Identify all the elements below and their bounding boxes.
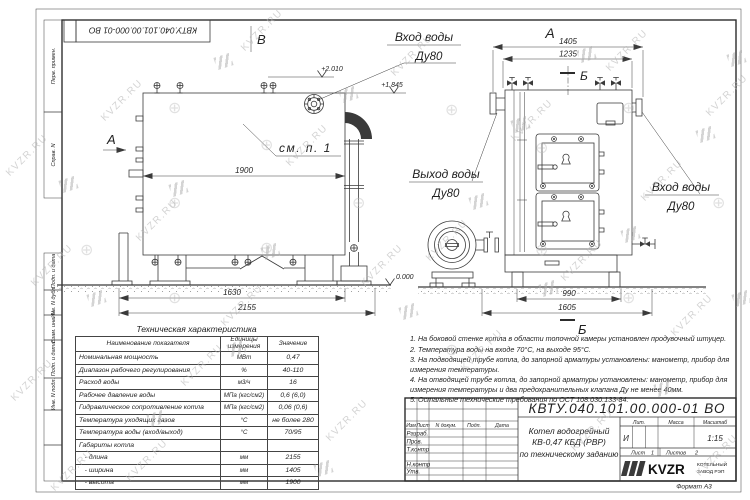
- spec-table-title: Техническая характеристика: [75, 324, 318, 334]
- note-line: 5. Остальные технические требования по О…: [410, 395, 737, 405]
- inlet-flange-icon: [305, 95, 324, 114]
- tb-sheet-value: 1: [651, 451, 654, 457]
- elevation-value: +2.010: [321, 66, 343, 73]
- door-handle: [538, 222, 553, 226]
- spec-cell: 40-110: [268, 364, 319, 377]
- tb-lit-header: Лит.: [632, 420, 645, 426]
- tb-scale-header: Масштаб: [703, 420, 728, 426]
- left-view: [57, 26, 461, 316]
- top-stamp-small-box: [64, 20, 76, 42]
- upper-door: [536, 134, 599, 191]
- leg: [512, 272, 523, 287]
- spec-row: Диапазон рабочего регулирования%40-110: [76, 364, 319, 377]
- tb-row: Утв.: [406, 470, 421, 476]
- top-stamp-doc-number: КВТУ.040.101.00.000-01 ВО: [88, 26, 197, 36]
- tb-col: N докум.: [436, 423, 457, 429]
- left-wall-fittings: [129, 116, 143, 212]
- tb-title-3: по техническому заданию: [520, 450, 619, 459]
- spec-cell: мм: [221, 477, 268, 490]
- spec-cell: [268, 439, 319, 452]
- outlet-stub: [496, 98, 505, 110]
- sidebar-label: Подп. и дата: [51, 342, 57, 376]
- tb-title-2: КВ-0,47 КБД (РВР): [532, 437, 606, 447]
- spec-cell: Рабочее давление воды: [76, 389, 221, 402]
- spec-cell: Температура воды (вход/выход): [76, 427, 221, 440]
- spec-cell: - высота: [76, 477, 221, 490]
- spec-row: Расход водым3/ч16: [76, 377, 319, 390]
- valve-icon: [177, 83, 183, 94]
- callout-text: см. п. 1: [279, 141, 332, 155]
- spec-row: Температура уходящих газов°Сне более 280: [76, 414, 319, 427]
- plinth-handle: [545, 261, 559, 265]
- tb-row: Н.контр: [407, 463, 431, 469]
- valve-icon: [175, 255, 181, 265]
- inlet-water-dn: Ду80: [414, 51, 443, 63]
- drawing-sheet: Перв. примен. Справ. N Подп. и дата Инв.…: [0, 0, 750, 500]
- spec-row: Габариты котла: [76, 439, 319, 452]
- tb-sheets-label: Листов: [665, 451, 686, 457]
- spec-row: - ширинамм1405: [76, 464, 319, 477]
- spec-cell: °С: [221, 414, 268, 427]
- spec-row: Рабочее давление водыМПа (кгс/см2)0,6 (6…: [76, 389, 319, 402]
- door-latch-icon: [562, 154, 570, 164]
- bolt-icon: [552, 195, 557, 200]
- tb-lit-value: И: [623, 434, 629, 443]
- outlet-flange: [490, 93, 496, 114]
- front-duct: [514, 90, 527, 255]
- tb-col: Дата: [494, 423, 509, 429]
- spec-row: Гидравлическое сопротивление котлаМПа (к…: [76, 402, 319, 415]
- fan-blower: [428, 221, 484, 287]
- spec-cell: 0,6 (6,0): [268, 389, 319, 402]
- sidebar-label: Справ. N: [51, 143, 57, 166]
- valve-icon: [290, 255, 296, 265]
- fan-valve-flanges: [484, 232, 499, 252]
- view-label-a-top: А: [544, 25, 554, 41]
- upper-door-panel: [542, 143, 594, 183]
- tb-row: Разраб.: [407, 431, 429, 437]
- notes-block: 1. На боковой стенке котла в области топ…: [410, 334, 737, 406]
- bolt-icon: [590, 242, 595, 247]
- spec-cell: Гидравлическое сопротивление котла: [76, 402, 221, 415]
- spec-cell: не более 280: [268, 414, 319, 427]
- left-downpipe: [119, 233, 128, 281]
- kvzr-logo-text: KVZR: [648, 462, 685, 477]
- spec-cell: 0,06 (0,6): [268, 402, 319, 415]
- spec-cell: МПа (кгс/см2): [221, 402, 268, 415]
- pipe-lower: [350, 252, 359, 266]
- section-label-top: Б: [580, 69, 588, 83]
- spec-cell: 16: [268, 377, 319, 390]
- spec-row: Температура воды (вход/выход)°С70/95: [76, 427, 319, 440]
- spec-cell: мм: [221, 452, 268, 465]
- note-line: 2. Температура воды на входе 70°С, на вы…: [410, 345, 737, 355]
- zero-elevation-icon: [386, 279, 395, 286]
- spec-cell: - длина: [76, 452, 221, 465]
- view-label-b: В: [257, 32, 266, 47]
- elevation-value: 0.000: [396, 274, 414, 281]
- spec-cell: 1900: [268, 477, 319, 490]
- dim-value: 1900: [235, 166, 253, 175]
- spec-cell: Габариты котла: [76, 439, 221, 452]
- spec-table-block: Техническая характеристика Наименование …: [75, 324, 318, 490]
- valve-icon: [523, 78, 533, 91]
- spec-cell: °С: [221, 427, 268, 440]
- support-frame: [158, 255, 333, 281]
- elevation-value: +1.845: [381, 82, 403, 89]
- tb-col: Подп.: [467, 423, 481, 429]
- tb-sheet-label: Лист: [630, 451, 646, 457]
- spec-header-value: Значение: [268, 337, 319, 352]
- bolt-icon: [552, 137, 557, 142]
- spec-header-name: Наименование показателя: [76, 337, 221, 352]
- dim-value: 1630: [223, 288, 241, 297]
- dim-value: 1235: [559, 50, 577, 59]
- outlet-water-label: Выход воды: [412, 167, 480, 181]
- spec-cell: 1405: [268, 464, 319, 477]
- sidebar-label: Подп. и дата: [51, 254, 57, 288]
- tb-scale-value: 1:15: [707, 434, 723, 443]
- leg: [609, 272, 620, 287]
- dim-value: 990: [562, 289, 576, 298]
- spec-cell: Номинальная мощность: [76, 352, 221, 365]
- plinth: [505, 255, 617, 272]
- bolt-icon: [541, 184, 546, 189]
- spec-cell: - ширина: [76, 464, 221, 477]
- dim-value: 2155: [237, 303, 256, 312]
- spec-header-units: Единицы измерения: [221, 337, 268, 352]
- spec-cell: 2155: [268, 452, 319, 465]
- tb-col: Изм: [406, 423, 416, 429]
- sidebar-label: Взам. инв. N: [51, 311, 57, 343]
- valve-icon: [611, 78, 621, 91]
- spec-cell: Диапазон рабочего регулирования: [76, 364, 221, 377]
- spec-cell: Температура уходящих газов: [76, 414, 221, 427]
- company-line: КОТЕЛЬНЫЙ: [697, 460, 728, 468]
- pipe-base: [341, 266, 367, 281]
- inlet-water-label: Вход воды: [652, 180, 710, 194]
- outlet-pipe: [344, 139, 364, 242]
- boiler-front: [505, 90, 632, 255]
- spec-cell: мм: [221, 464, 268, 477]
- valve-icon: [595, 78, 605, 91]
- spec-cell: [221, 439, 268, 452]
- view-label-a: А: [106, 132, 116, 147]
- spec-cell: МВт: [221, 352, 268, 365]
- dim-value: 1605: [558, 303, 576, 312]
- spec-cell: 70/95: [268, 427, 319, 440]
- valve-icon: [351, 245, 358, 252]
- inlet-stub: [632, 103, 636, 112]
- tb-sheets-value: 2: [694, 451, 698, 457]
- spec-table: Наименование показателя Единицы измерени…: [75, 336, 319, 490]
- spec-cell: м3/ч: [221, 377, 268, 390]
- inlet-water-label: Вход воды: [395, 30, 453, 44]
- door-hinges: [599, 152, 604, 174]
- sidebar-label: Инв. N подл.: [51, 378, 57, 410]
- bolt-icon: [541, 242, 546, 247]
- inlet-flange: [636, 99, 642, 116]
- spec-row: - длинамм2155: [76, 452, 319, 465]
- spec-table-body: Номинальная мощностьМВт0,47Диапазон рабо…: [76, 352, 319, 490]
- company-line: ЗАВОД РЭП: [697, 469, 725, 475]
- hatch-tab: [606, 121, 615, 125]
- spec-cell: Расход воды: [76, 377, 221, 390]
- valve-icon: [507, 78, 517, 91]
- format-label: Формат А3: [676, 484, 712, 491]
- frame-sidebar: [44, 20, 62, 481]
- tb-row: Т.контр: [407, 447, 430, 453]
- tb-title-1: Котел водогрейный: [529, 426, 610, 436]
- valve-icon: [261, 83, 267, 94]
- valve-icon: [232, 255, 238, 265]
- note-line: 4. На отводящей трубе котла, до запорной…: [410, 375, 737, 394]
- spec-row: - высотамм1900: [76, 477, 319, 490]
- bolt-icon: [579, 195, 584, 200]
- outlet-water-dn: Ду80: [431, 188, 460, 200]
- spec-row: Номинальная мощностьМВт0,47: [76, 352, 319, 365]
- note-line: 3. На подводящей трубе котла, до запорно…: [410, 355, 737, 374]
- door-handle: [538, 165, 553, 169]
- inlet-water-dn: Ду80: [666, 201, 695, 213]
- title-block: КВТУ.040.101.00.000-01 ВО Изм Лист N док…: [405, 398, 736, 491]
- bolt-icon: [579, 137, 584, 142]
- tb-mass-header: Масса: [668, 420, 683, 426]
- note-line: 1. На боковой стенке котла в области топ…: [410, 334, 737, 344]
- valve-icon: [245, 255, 251, 265]
- valve-icon: [640, 238, 650, 247]
- valve-icon: [270, 83, 276, 94]
- spec-cell: %: [221, 364, 268, 377]
- handle-pin: [553, 165, 557, 169]
- door-hinges: [599, 210, 604, 232]
- spec-cell: МПа (кгс/см2): [221, 389, 268, 402]
- dim-value: 1405: [559, 37, 577, 46]
- kvzr-logo-icon: [621, 461, 646, 476]
- outlet-elbow: [345, 112, 372, 139]
- tb-col: Лист: [415, 423, 430, 429]
- spec-cell: 0,47: [268, 352, 319, 365]
- bolt-icon: [590, 184, 595, 189]
- tb-row: Пров.: [407, 439, 423, 445]
- handle-pin: [553, 222, 557, 226]
- sidebar-label: Перв. примен.: [51, 48, 57, 85]
- valve-icon: [154, 83, 160, 94]
- door-latch-icon: [562, 211, 570, 221]
- valve-icon: [152, 255, 158, 265]
